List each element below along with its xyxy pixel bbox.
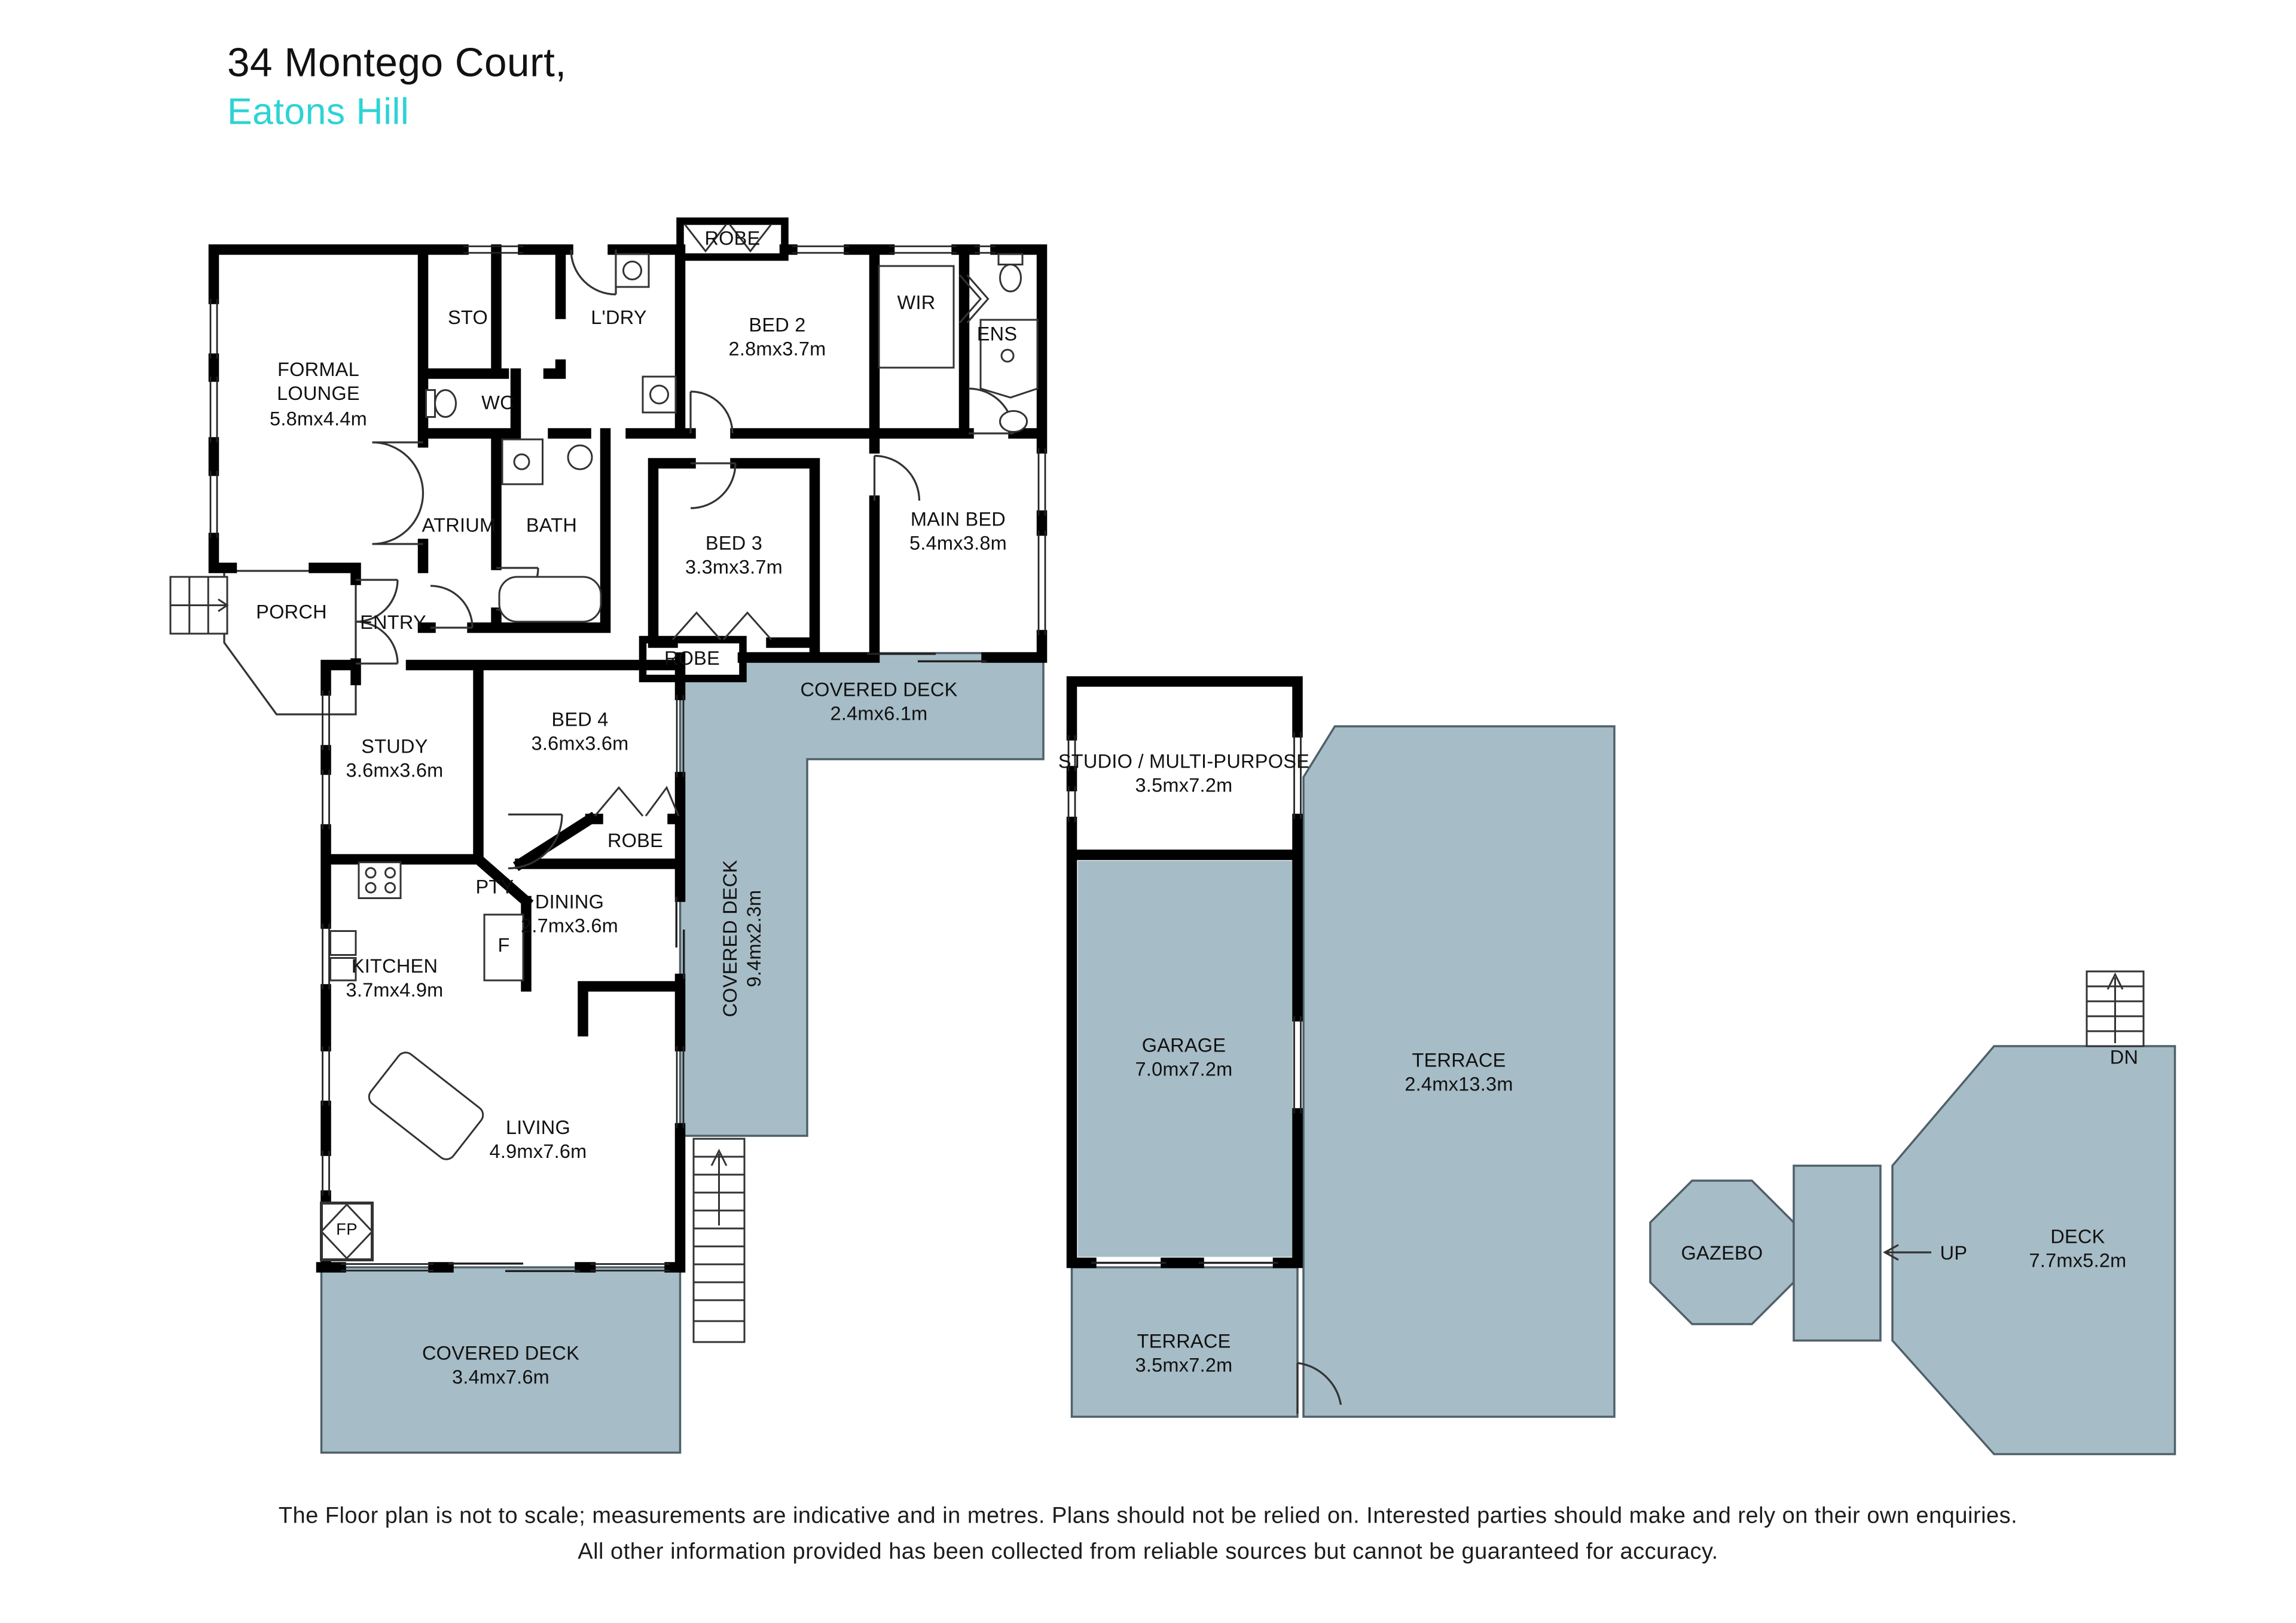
floorplan-page: FORMAL LOUNGE 5.8mx4.4m STO L'DRY WC ATR… bbox=[0, 0, 2296, 1623]
dn-stairs-icon bbox=[2087, 971, 2144, 1046]
fridge-box bbox=[484, 915, 523, 980]
ens-basin-icon bbox=[1000, 411, 1027, 432]
stove-icon bbox=[359, 863, 401, 898]
gazebo-area bbox=[1650, 1181, 1794, 1324]
wc-toilet-icon bbox=[426, 390, 456, 417]
property-suburb: Eatons Hill bbox=[227, 89, 567, 136]
disclaimer-line1: The Floor plan is not to scale; measurem… bbox=[0, 1503, 2296, 1529]
covered-deck-bottom-area bbox=[322, 1267, 680, 1453]
deck-area bbox=[1892, 1046, 2175, 1454]
deck-stairs-icon bbox=[694, 1139, 744, 1342]
covered-deck-top-area bbox=[680, 653, 1044, 1136]
deck-areas bbox=[322, 653, 2175, 1454]
ens-shower-icon bbox=[981, 320, 1037, 398]
property-address: 34 Montego Court, bbox=[227, 39, 567, 89]
laundry-washer-icon bbox=[616, 254, 649, 287]
disclaimer-line2: All other information provided has been … bbox=[0, 1539, 2296, 1565]
bath-sink-icon bbox=[568, 445, 592, 469]
fireplace-icon bbox=[322, 1203, 373, 1260]
bath-shower-icon bbox=[502, 439, 543, 484]
terrace-bottom-area bbox=[1072, 1267, 1298, 1417]
porch-outline bbox=[224, 571, 356, 714]
laundry-tub-icon bbox=[643, 377, 676, 412]
porch-steps-icon bbox=[170, 577, 227, 634]
kitchen-island-icon bbox=[365, 1049, 487, 1163]
wir-closet-box bbox=[879, 266, 954, 368]
floorplan: FORMAL LOUNGE 5.8mx4.4m STO L'DRY WC ATR… bbox=[0, 0, 2296, 1623]
floorplan-drawing bbox=[0, 0, 2296, 1623]
bathtub-icon bbox=[499, 577, 601, 622]
ens-toilet-icon bbox=[999, 254, 1022, 292]
kitchen-sink-icon bbox=[331, 931, 356, 981]
garage-floor-area bbox=[1078, 861, 1293, 1257]
terrace-right-area bbox=[1303, 726, 1614, 1417]
gazebo-walkway-area bbox=[1794, 1166, 1880, 1341]
plan-title: 34 Montego Court, Eatons Hill bbox=[227, 39, 567, 136]
